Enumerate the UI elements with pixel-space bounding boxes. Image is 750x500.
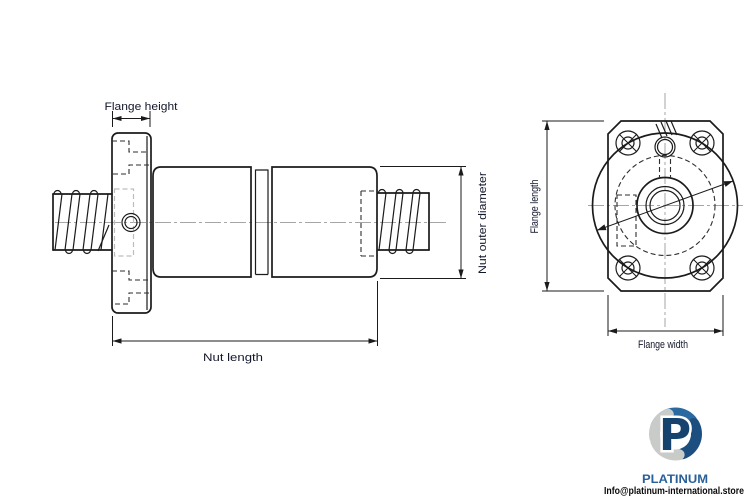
dim-arrow-top: [458, 167, 463, 176]
flange-width-label: Flange width: [638, 339, 688, 351]
lube-hole-front: [655, 121, 677, 177]
dim-extension-lines: [113, 281, 378, 346]
dim-arrow-left: [113, 116, 122, 121]
thread-crest-lines: [379, 193, 420, 250]
branding-block: P PLATINUM Info@platinum-international.s…: [604, 410, 744, 497]
dim-arrow-upper-right: [724, 181, 734, 187]
flange-height-label: Flange height: [105, 101, 178, 113]
bolt-hole-top-left: [616, 131, 640, 155]
nut-length-label: Nut length: [203, 352, 263, 364]
flange-length-label: Flange length: [529, 180, 541, 234]
brand-email: Info@platinum-international.store: [604, 486, 744, 497]
front-view: Flange length Flange width: [529, 93, 743, 351]
section-hatch-lines: [656, 121, 677, 138]
dim-arrow-bottom: [544, 282, 549, 291]
dim-arrow-right: [141, 116, 150, 121]
dim-arrow-left: [608, 328, 617, 333]
right-screw-thread: [378, 190, 429, 254]
dim-arrow-bottom: [458, 270, 463, 279]
nut-length-dimension: Nut length: [113, 281, 378, 364]
hidden-return-tube: [617, 195, 636, 246]
bolt-hole-bottom-right: [690, 256, 714, 280]
side-view: Flange height Nut outer diameter Nut len…: [53, 101, 489, 364]
hidden-bore-lines: [361, 191, 378, 256]
brand-name: PLATINUM: [642, 472, 708, 486]
ballscrew-nut-drawing: Flange height Nut outer diameter Nut len…: [0, 0, 750, 500]
flange-height-dimension: Flange height: [105, 101, 178, 127]
hidden-bolt-counterbore-top: [112, 141, 149, 174]
dim-arrow-lower-left: [597, 224, 607, 230]
dim-arrow-left: [113, 338, 122, 343]
bolt-hole-bottom-left: [616, 256, 640, 280]
hidden-bolt-counterbore-bottom: [112, 271, 149, 304]
dim-arrow-right: [369, 338, 378, 343]
logo-p-letter: P: [659, 410, 691, 461]
dim-arrow-right: [714, 328, 723, 333]
dim-arrow-top: [544, 121, 549, 130]
platinum-logo-icon: P: [654, 410, 696, 461]
nut-outer-diameter-label: Nut outer diameter: [477, 172, 489, 274]
bolt-hole-top-right: [690, 131, 714, 155]
technical-drawing-canvas: Flange height Nut outer diameter Nut len…: [0, 0, 750, 500]
